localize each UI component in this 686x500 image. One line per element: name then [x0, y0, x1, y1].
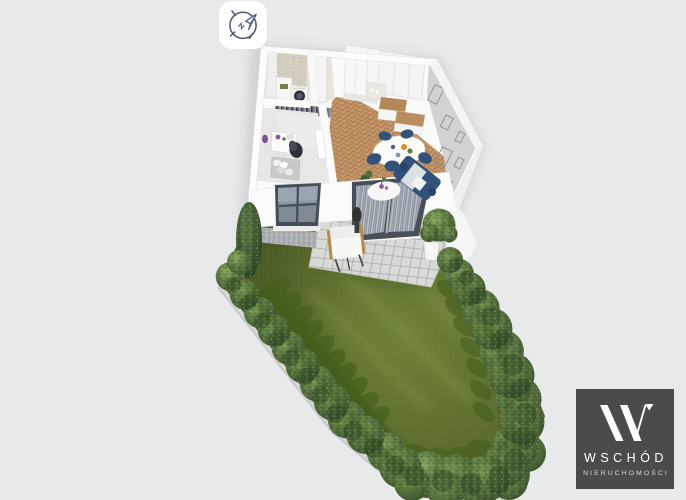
svg-text:WSCHÓD: WSCHÓD — [584, 450, 668, 465]
svg-text:NIERUCHOMOŚCI: NIERUCHOMOŚCI — [583, 468, 669, 477]
